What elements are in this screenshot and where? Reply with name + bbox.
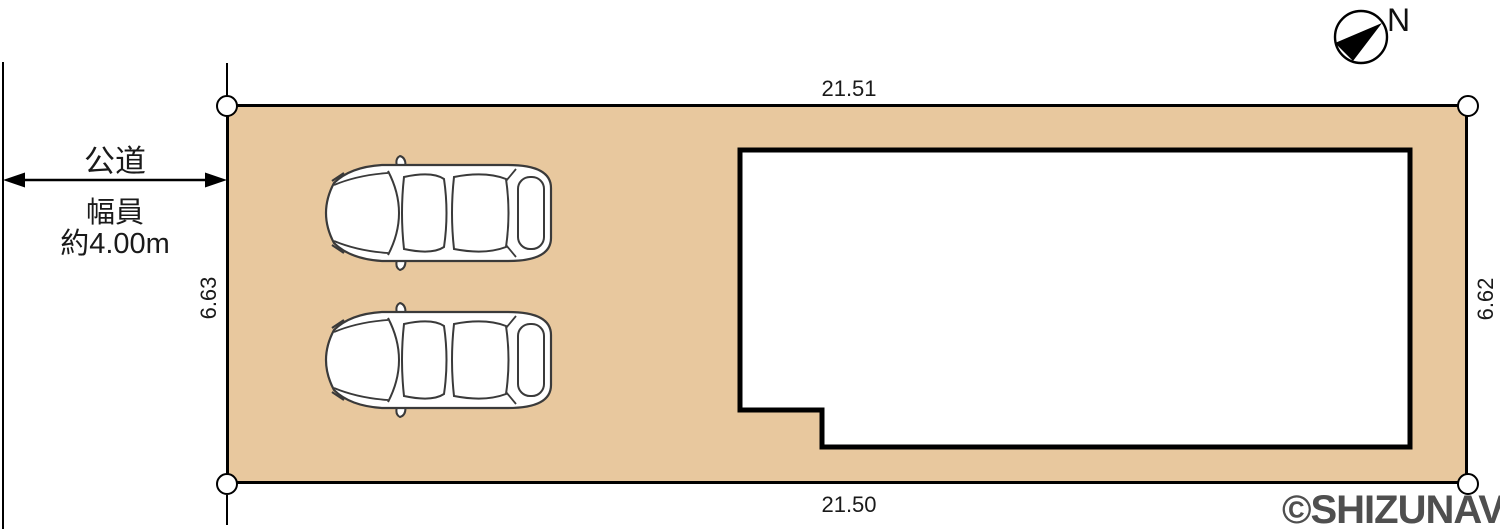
site-plan-canvas: 21.51 21.50 6.63 6.62 公道 幅員 約4.00m N ©SH… <box>0 0 1500 529</box>
dimension-bottom: 21.50 <box>789 492 909 518</box>
building-outline <box>740 150 1410 447</box>
dimension-left: 6.63 <box>196 268 222 328</box>
road-width-value: 約4.00m <box>30 220 200 262</box>
north-compass-icon <box>1332 8 1394 70</box>
plot-boundary-extension-bottom <box>226 495 228 525</box>
dimension-top: 21.51 <box>789 76 909 102</box>
car-top-view-2 <box>320 302 560 418</box>
car-top-view-1 <box>320 155 560 271</box>
plot-corner-marker-top-right <box>1457 95 1479 117</box>
plot-corner-marker-bottom-left <box>216 473 238 495</box>
road-arrow-head-left-icon <box>3 173 25 188</box>
road-arrow-head-right-icon <box>205 173 227 188</box>
north-label: N <box>1387 2 1410 39</box>
watermark-logo: ©SHIZUNAVI <box>1282 488 1500 529</box>
plot-corner-marker-top-left <box>216 95 238 117</box>
building-footprint <box>733 143 1417 454</box>
road-left-edge-line <box>2 62 4 529</box>
dimension-right: 6.62 <box>1473 269 1499 329</box>
